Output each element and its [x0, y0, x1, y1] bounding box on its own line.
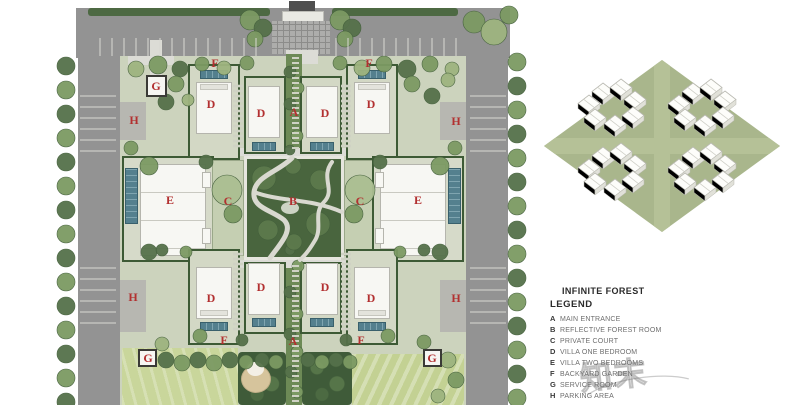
plan-marker-h: H: [451, 115, 460, 127]
plan-marker-d: D: [207, 292, 216, 304]
plan-marker-d: D: [207, 98, 216, 110]
plan-marker-f: F: [365, 57, 372, 69]
plan-marker-h: H: [451, 292, 460, 304]
legend-item-key: C: [550, 336, 560, 345]
plan-marker-g: G: [143, 352, 152, 364]
legend-item-label: PRIVATE COURT: [560, 338, 618, 345]
legend-item-label: MAIN ENTRANCE: [560, 316, 621, 323]
legend-item-label: REFLECTIVE FOREST ROOM: [560, 327, 662, 334]
legend-item-key: G: [550, 380, 560, 389]
legend-item-key: H: [550, 391, 560, 400]
plan-marker-d: D: [367, 98, 376, 110]
plan-marker-c: C: [356, 195, 365, 207]
legend-title: INFINITE FOREST: [562, 286, 740, 296]
legend-item-key: F: [550, 369, 560, 378]
plan-markers: FFGHHADDDDECBCEHHDDDDFAFGG: [0, 0, 530, 405]
plan-marker-c: C: [224, 195, 233, 207]
plan-marker-b: B: [289, 195, 297, 207]
plan-marker-d: D: [321, 281, 330, 293]
legend-item-key: D: [550, 347, 560, 356]
plan-marker-a: A: [290, 106, 299, 118]
plan-marker-h: H: [129, 114, 138, 126]
plan-marker-d: D: [321, 107, 330, 119]
legend-item-key: B: [550, 325, 560, 334]
axon-view: [533, 38, 791, 246]
plan-marker-e: E: [414, 194, 422, 206]
legend-item-c: CPRIVATE COURT: [550, 336, 740, 347]
legend-item-key: A: [550, 314, 560, 323]
legend-subtitle: LEGEND: [550, 299, 740, 310]
plan-marker-e: E: [166, 194, 174, 206]
plan-marker-d: D: [367, 292, 376, 304]
legend-item-b: BREFLECTIVE FOREST ROOM: [550, 325, 740, 336]
plan-marker-f: F: [357, 334, 364, 346]
plan-marker-g: G: [427, 352, 436, 364]
axon-cross-axes: [544, 60, 780, 232]
plan-marker-f: F: [220, 334, 227, 346]
site-plan-page: FFGHHADDDDECBCEHHDDDDFAFGG INFINITE FORE…: [0, 0, 800, 405]
plan-marker-d: D: [257, 107, 266, 119]
legend-item-key: E: [550, 358, 560, 367]
plan-marker-a: A: [289, 335, 298, 347]
legend-item-a: AMAIN ENTRANCE: [550, 314, 740, 325]
plan-marker-g: G: [151, 80, 160, 92]
plan-marker-h: H: [128, 291, 137, 303]
plan-marker-d: D: [257, 281, 266, 293]
plan-marker-f: F: [211, 57, 218, 69]
